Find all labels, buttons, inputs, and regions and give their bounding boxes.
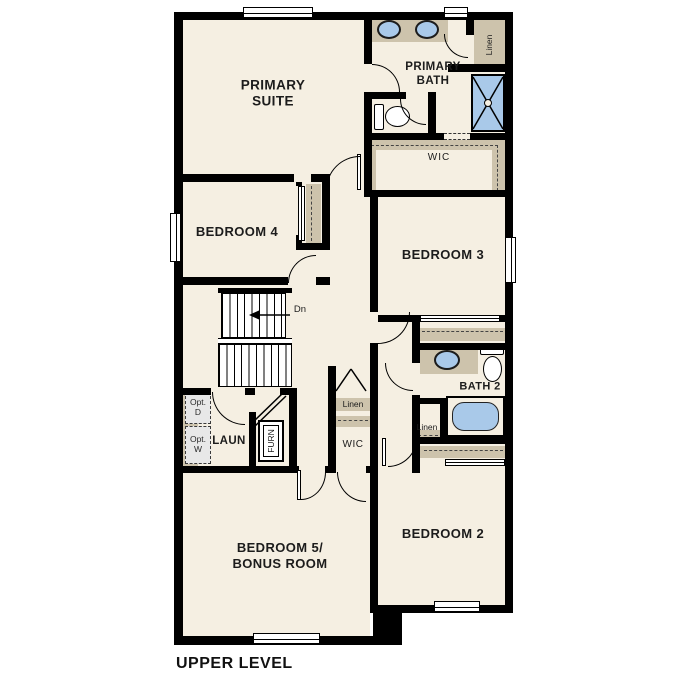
closet-label-linen-hall: Linen [343, 399, 364, 409]
window [434, 601, 480, 612]
wall [312, 174, 322, 182]
hall-closet-dashed [338, 420, 368, 421]
wall [280, 388, 297, 395]
room-label-bedroom-4: BEDROOM 4 [196, 224, 278, 240]
primary-toilet-tank [374, 104, 384, 130]
primary-sink-left [377, 20, 401, 39]
wall [412, 350, 420, 363]
bedroom4-closet-dashed [311, 186, 312, 241]
stair-upper-run [221, 293, 286, 338]
wall [370, 197, 378, 312]
room-label-laundry: LAUN [212, 434, 246, 448]
room-label-primary-suite: PRIMARY SUITE [241, 78, 306, 111]
window [243, 7, 313, 18]
annotation-furnace: FURN [266, 429, 276, 453]
wall [174, 277, 288, 285]
wall [370, 470, 378, 605]
window [170, 213, 181, 262]
plan-title: UPPER LEVEL [176, 655, 293, 673]
wall [364, 133, 444, 140]
bedroom4-closet-doors [298, 186, 305, 241]
closet-label-wic-primary: WIC [428, 152, 450, 164]
bath2-sink [434, 350, 460, 370]
wall [183, 388, 211, 395]
room-label-bedroom-3: BEDROOM 3 [402, 247, 484, 263]
stair-lower-run [218, 344, 292, 387]
wall [373, 605, 402, 645]
wall [470, 133, 505, 140]
closet-label-wic-hall: WIC [343, 439, 364, 451]
wall [328, 366, 336, 468]
linen-bath2-dashed [418, 435, 438, 436]
room-label-bedroom-2: BEDROOM 2 [402, 526, 484, 542]
closet-label-linen-bath2: Linen [417, 422, 438, 432]
wall [370, 343, 378, 470]
wall [183, 466, 299, 473]
bedroom2-closet-doors [445, 459, 505, 466]
window [505, 237, 516, 283]
wall [428, 92, 436, 133]
bedroom3-closet-doors [420, 315, 500, 322]
bedroom2-closet-shelf [420, 446, 505, 458]
bedroom3-closet-shelf [420, 328, 505, 341]
optional-dryer-box: Opt. D [185, 391, 211, 424]
bedroom2-closet-dashed [424, 450, 503, 451]
window [253, 633, 320, 644]
room-label-primary-bath: PRIMARY BATH [405, 60, 460, 88]
wall [412, 437, 505, 444]
wall [364, 19, 372, 64]
bathtub-basin [452, 402, 499, 431]
wall [440, 398, 446, 438]
optional-washer-box: Opt. W [185, 426, 211, 464]
wall [500, 315, 505, 322]
window [444, 7, 468, 18]
optional-washer-label: Opt. W [190, 435, 206, 455]
wall [296, 243, 330, 250]
shower [471, 74, 505, 132]
wall [174, 174, 293, 182]
door-leaf [382, 438, 386, 466]
wall [174, 12, 183, 645]
primary-sink-right [415, 20, 439, 39]
closet-label-linen-primary: Linen [484, 35, 494, 56]
wall [466, 19, 474, 35]
wall [364, 190, 505, 197]
hall-closet-shelf2 [336, 416, 370, 427]
bedroom3-closet-dashed [422, 331, 503, 332]
bedroom4-closet-shelf [306, 184, 321, 243]
annotation-stairs-down: Dn [294, 304, 306, 316]
bath2-toilet-bowl [483, 356, 502, 382]
wall [505, 12, 513, 613]
cased-opening [293, 174, 312, 182]
wall [412, 343, 505, 350]
wall [364, 92, 406, 99]
room-label-bedroom-5: BEDROOM 5/ BONUS ROOM [233, 540, 328, 572]
wall [289, 388, 297, 470]
wall [249, 412, 256, 470]
room-label-bath-2: BATH 2 [459, 380, 500, 393]
floor-plan: Opt. D Opt. W [0, 0, 687, 687]
wall [245, 388, 255, 395]
wic-entry-dashed [444, 133, 470, 140]
wall [364, 92, 372, 197]
wall [316, 277, 330, 285]
wall [366, 466, 378, 473]
optional-dryer-label: Opt. D [190, 398, 206, 418]
